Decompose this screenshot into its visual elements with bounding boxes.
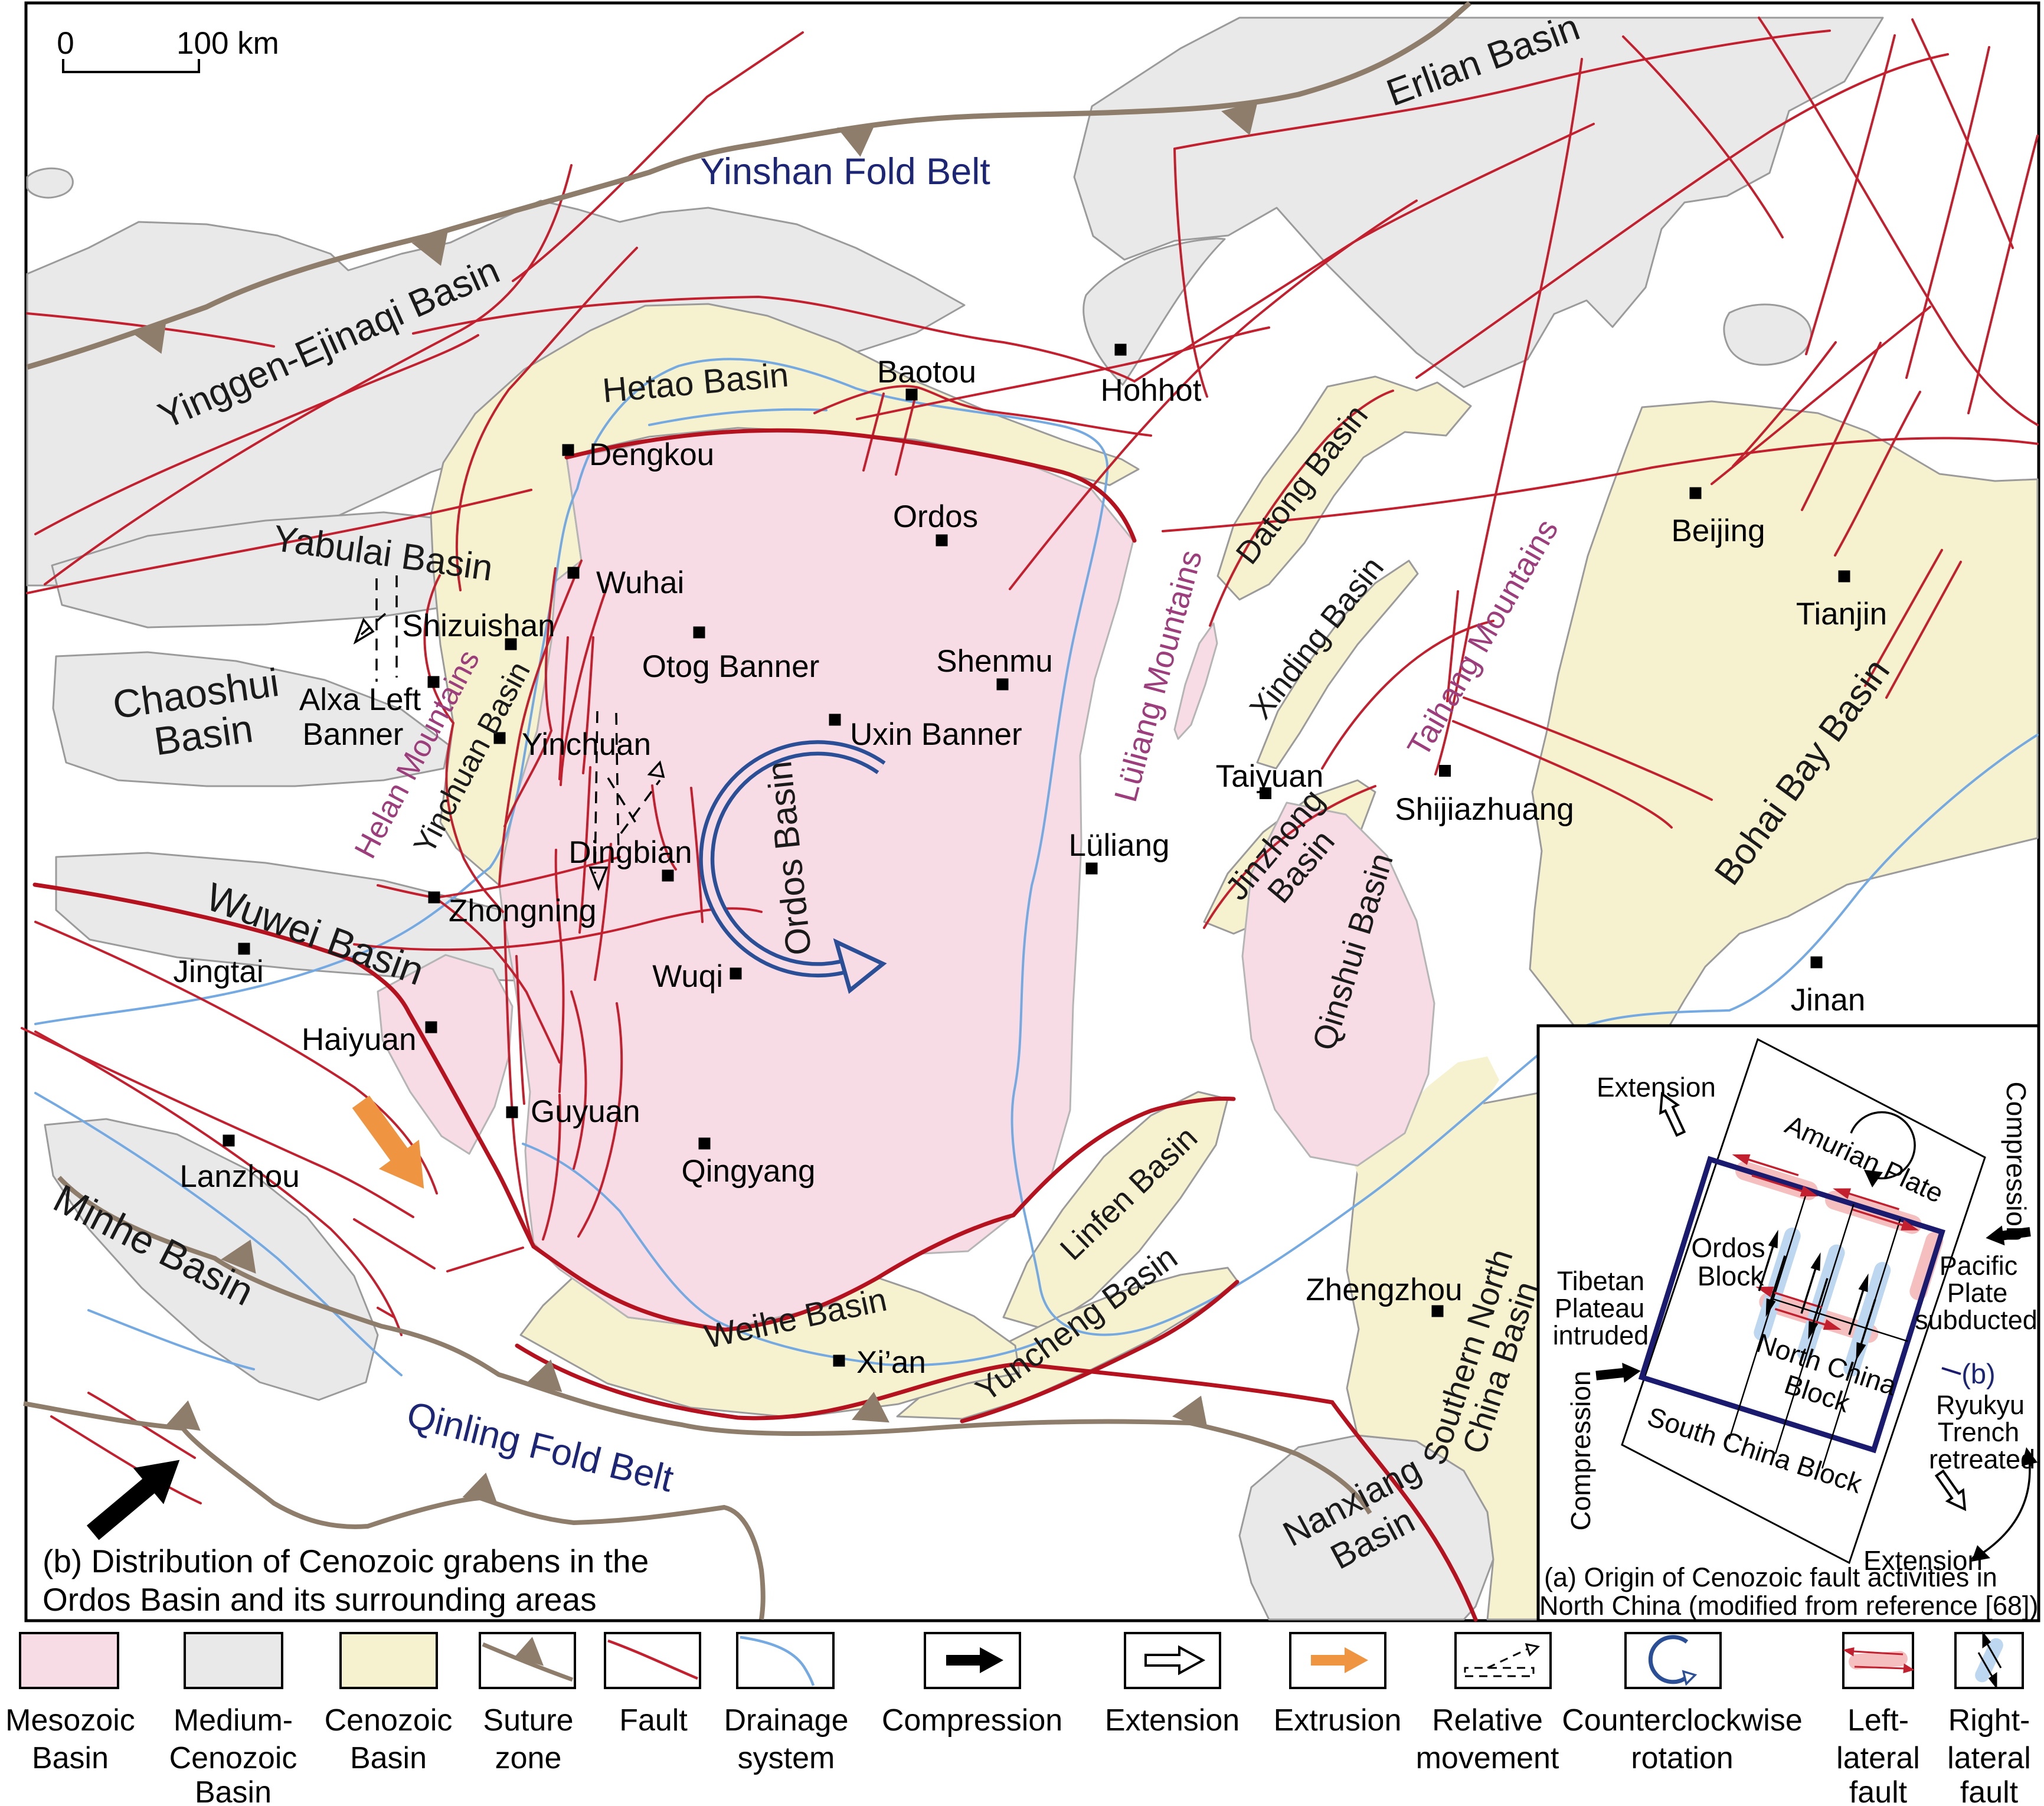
svg-text:Shizuishan: Shizuishan — [402, 608, 555, 643]
svg-text:Extension: Extension — [1105, 1703, 1240, 1738]
svg-text:Dengkou: Dengkou — [589, 437, 714, 472]
svg-text:Dingbian: Dingbian — [568, 835, 692, 870]
svg-text:lateral: lateral — [1836, 1741, 1920, 1775]
svg-text:Alxa Left: Alxa Left — [299, 682, 421, 717]
svg-text:Plate: Plate — [1947, 1278, 2008, 1308]
svg-text:Tianjin: Tianjin — [1796, 597, 1887, 632]
svg-text:intruded: intruded — [1553, 1320, 1649, 1350]
svg-text:Ordos Basin and its surroundin: Ordos Basin and its surrounding areas — [42, 1581, 597, 1618]
svg-text:Extrusion: Extrusion — [1274, 1703, 1402, 1738]
svg-text:Uxin Banner: Uxin Banner — [850, 717, 1022, 752]
svg-text:(a) Origin of Cenozoic fault a: (a) Origin of Cenozoic fault activities … — [1544, 1562, 1997, 1592]
svg-text:Lanzhou: Lanzhou — [179, 1159, 299, 1194]
svg-text:retreated: retreated — [1929, 1444, 2035, 1474]
svg-text:Relative: Relative — [1432, 1703, 1543, 1738]
svg-text:Wuqi: Wuqi — [652, 959, 723, 994]
svg-text:fault: fault — [1960, 1775, 2019, 1806]
svg-text:Qingyang: Qingyang — [682, 1154, 816, 1189]
svg-text:lateral: lateral — [1947, 1741, 2031, 1775]
svg-text:0: 0 — [57, 26, 74, 61]
svg-text:Basin: Basin — [350, 1741, 427, 1775]
svg-text:fault: fault — [1849, 1775, 1908, 1806]
svg-text:Cenozoic: Cenozoic — [325, 1703, 453, 1738]
svg-text:Jingtai: Jingtai — [173, 954, 263, 989]
svg-text:Medium-: Medium- — [174, 1703, 293, 1738]
svg-text:Right-: Right- — [1948, 1703, 2030, 1738]
svg-text:system: system — [738, 1741, 835, 1775]
svg-text:Compression: Compression — [2001, 1082, 2032, 1242]
svg-text:Cenozoic: Cenozoic — [169, 1741, 297, 1775]
svg-text:Otog Banner: Otog Banner — [642, 649, 820, 684]
svg-text:Compression: Compression — [882, 1703, 1062, 1738]
svg-text:Ryukyu: Ryukyu — [1936, 1390, 2025, 1420]
svg-text:Yinshan Fold Belt: Yinshan Fold Belt — [700, 151, 990, 192]
svg-text:Wuhai: Wuhai — [596, 565, 684, 600]
svg-text:Lüliang: Lüliang — [1069, 828, 1170, 863]
svg-text:movement: movement — [1416, 1741, 1559, 1775]
svg-text:Extension: Extension — [1597, 1072, 1716, 1102]
svg-text:Ordos: Ordos — [893, 499, 978, 534]
svg-text:Yinchuan: Yinchuan — [522, 727, 651, 762]
svg-text:North China (modified from ref: North China (modified from reference [68… — [1539, 1591, 2038, 1621]
svg-text:Mesozoic: Mesozoic — [5, 1703, 135, 1738]
svg-text:Fault: Fault — [619, 1703, 688, 1738]
svg-text:Zhongning: Zhongning — [449, 894, 596, 928]
svg-text:Zhengzhou: Zhengzhou — [1306, 1272, 1462, 1307]
svg-text:(b) Distribution of Cenozoic g: (b) Distribution of Cenozoic grabens in … — [42, 1543, 649, 1579]
svg-text:Jinan: Jinan — [1791, 983, 1866, 1017]
svg-text:Basin: Basin — [32, 1741, 109, 1775]
svg-text:rotation: rotation — [1631, 1741, 1733, 1775]
svg-text:Pacific: Pacific — [1940, 1251, 2018, 1281]
svg-text:Block: Block — [1698, 1261, 1764, 1291]
svg-text:subducted: subducted — [1915, 1305, 2038, 1335]
svg-text:Trench: Trench — [1938, 1417, 2019, 1447]
svg-text:Shenmu: Shenmu — [936, 644, 1052, 679]
svg-text:Ordos: Ordos — [1691, 1232, 1765, 1263]
svg-text:Tibetan: Tibetan — [1557, 1266, 1644, 1296]
svg-text:Plateau: Plateau — [1555, 1293, 1645, 1323]
svg-text:Shijiazhuang: Shijiazhuang — [1395, 792, 1574, 827]
svg-text:Baotou: Baotou — [877, 355, 976, 390]
svg-text:Xi’an: Xi’an — [856, 1345, 926, 1380]
svg-text:Counterclockwise: Counterclockwise — [1562, 1703, 1803, 1738]
svg-text:Hohhot: Hohhot — [1101, 373, 1202, 408]
svg-text:Banner: Banner — [303, 717, 404, 752]
svg-text:Haiyuan: Haiyuan — [302, 1022, 416, 1057]
svg-text:Beijing: Beijing — [1671, 513, 1765, 548]
svg-text:Suture: Suture — [483, 1703, 573, 1738]
svg-text:Basin: Basin — [195, 1775, 272, 1806]
svg-text:100 km: 100 km — [176, 26, 279, 61]
svg-text:Guyuan: Guyuan — [531, 1094, 640, 1129]
svg-text:Left-: Left- — [1847, 1703, 1909, 1738]
svg-text:(b): (b) — [1961, 1358, 1995, 1389]
svg-text:zone: zone — [495, 1741, 562, 1775]
svg-text:Compression: Compression — [1565, 1371, 1596, 1531]
svg-text:Drainage: Drainage — [724, 1703, 848, 1738]
